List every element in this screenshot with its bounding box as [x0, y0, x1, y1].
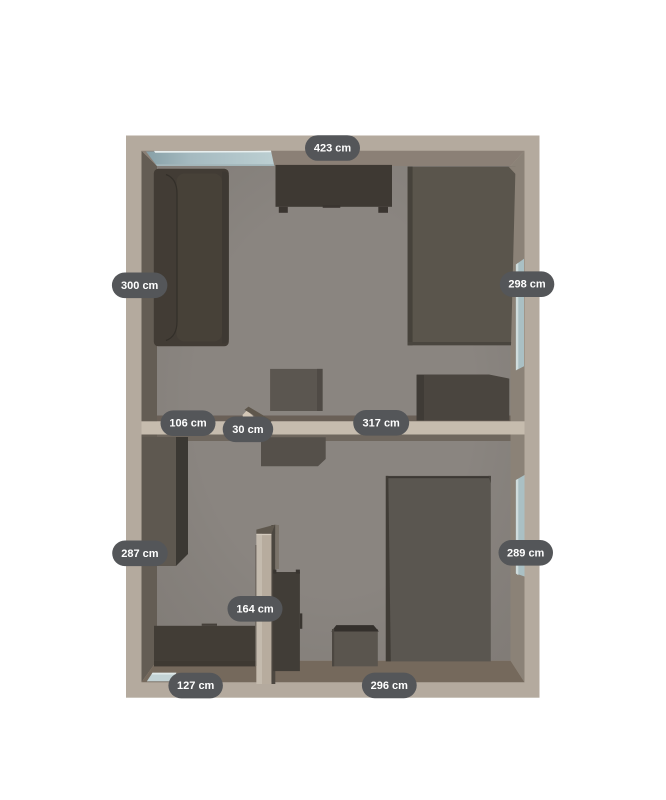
svg-text:317 cm: 317 cm: [363, 417, 401, 429]
svg-text:164 cm: 164 cm: [236, 603, 274, 615]
svg-text:287 cm: 287 cm: [121, 548, 159, 560]
svg-text:106 cm: 106 cm: [169, 418, 207, 430]
svg-text:423 cm: 423 cm: [314, 143, 352, 155]
svg-text:300 cm: 300 cm: [121, 280, 159, 292]
svg-text:127 cm: 127 cm: [177, 680, 215, 692]
svg-text:298 cm: 298 cm: [508, 279, 546, 291]
svg-text:30 cm: 30 cm: [232, 424, 263, 436]
svg-text:296 cm: 296 cm: [371, 680, 409, 692]
svg-text:289 cm: 289 cm: [507, 547, 545, 559]
